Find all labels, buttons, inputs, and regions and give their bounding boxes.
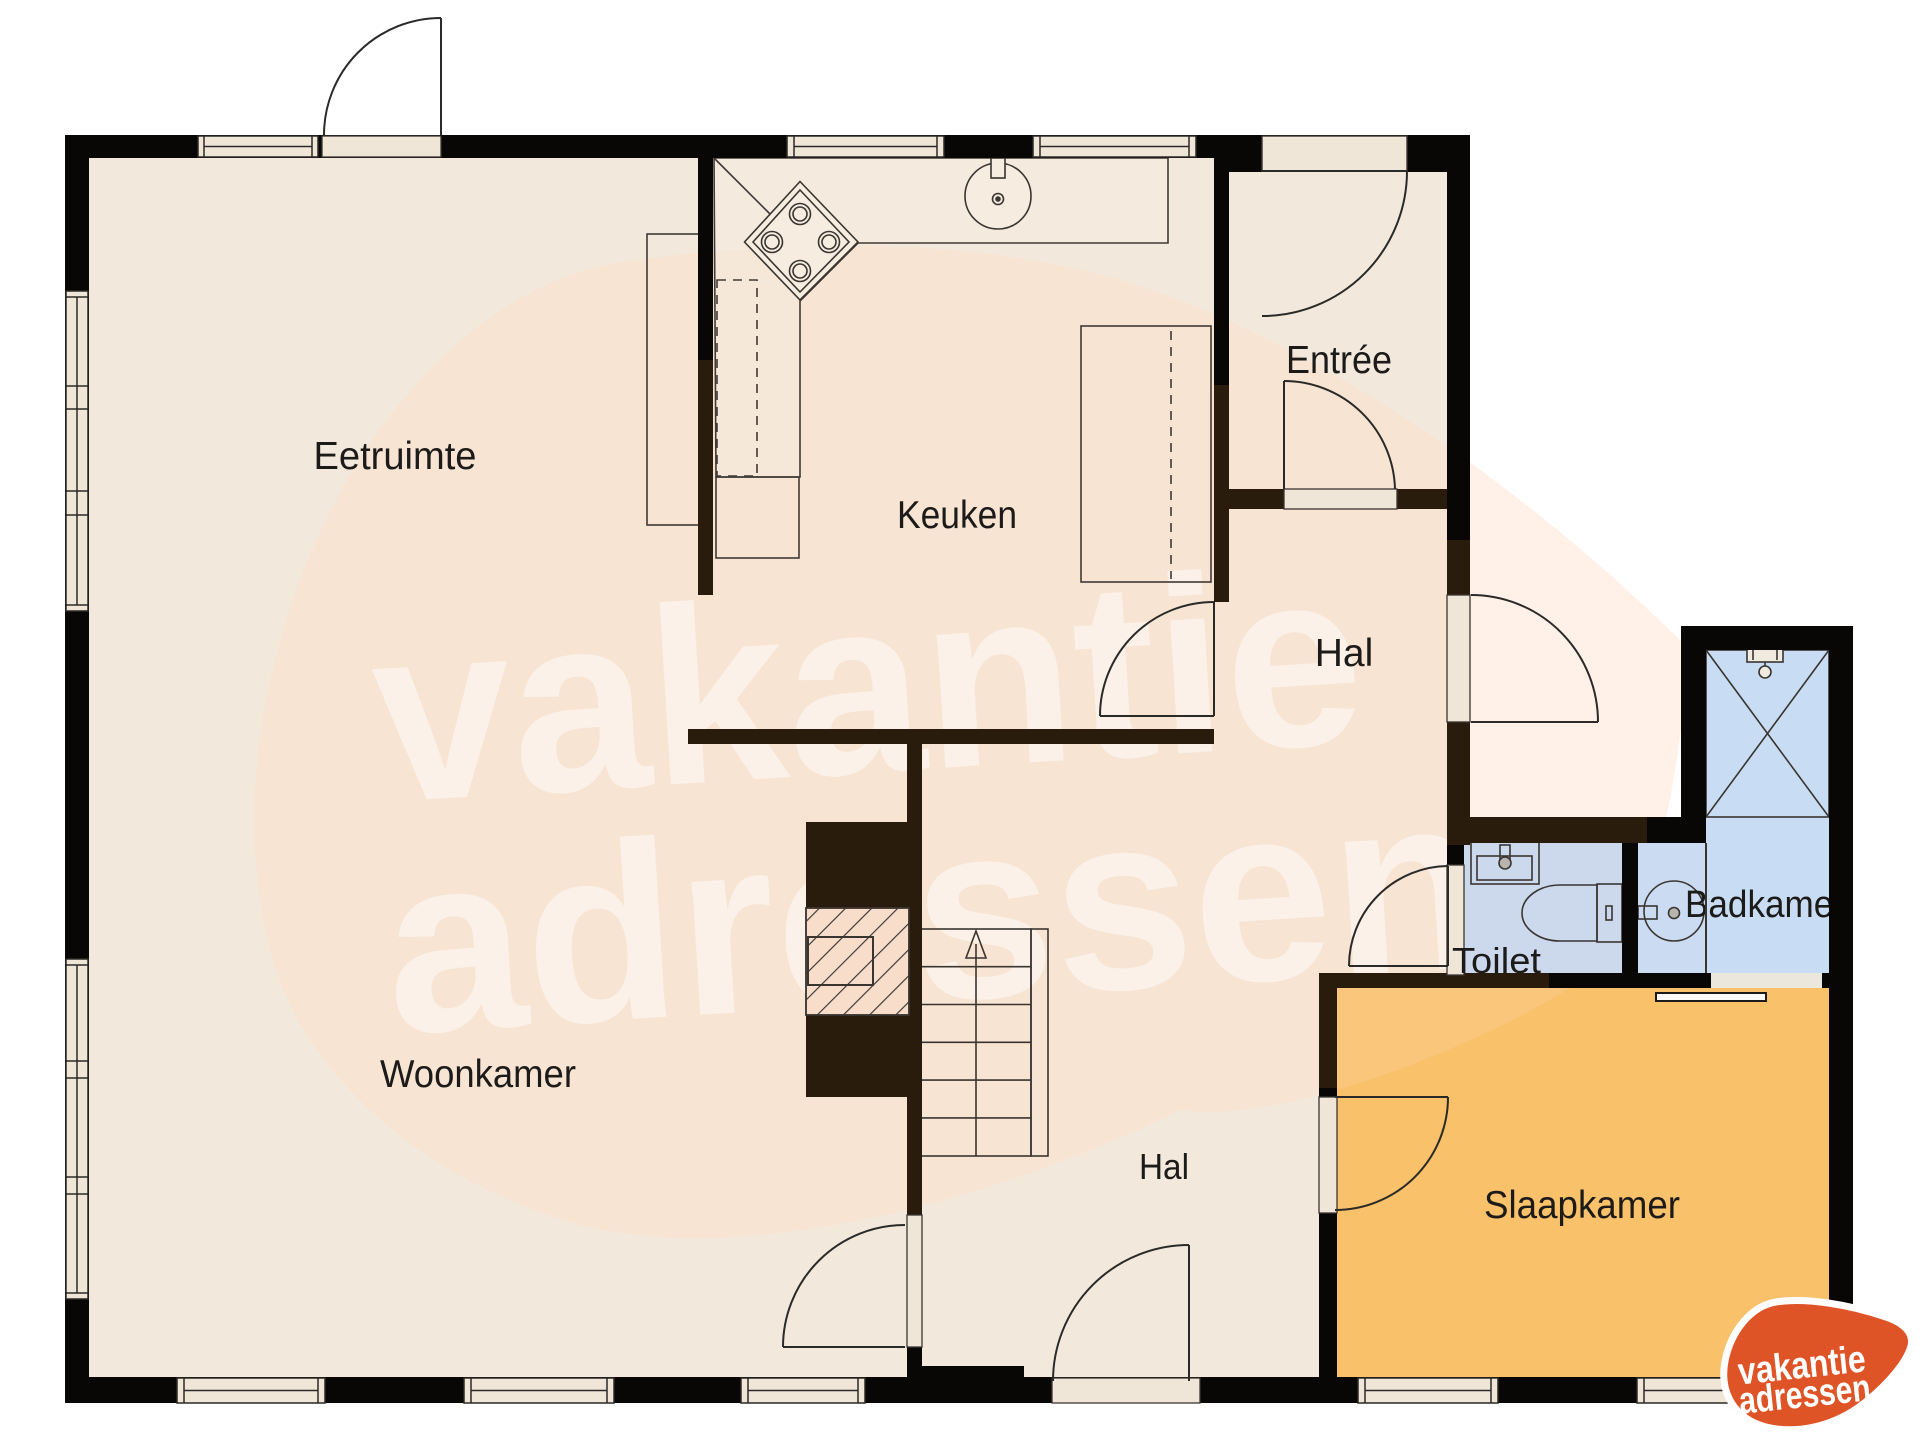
svg-text:Keuken: Keuken [897,494,1017,537]
svg-text:Toilet: Toilet [1452,940,1541,981]
svg-text:Slaapkamer: Slaapkamer [1484,1184,1680,1227]
svg-text:Woonkamer: Woonkamer [380,1053,576,1096]
svg-text:Badkamer: Badkamer [1685,884,1845,926]
svg-text:Hal: Hal [1315,632,1374,675]
svg-text:Eetruimte: Eetruimte [314,435,477,478]
svg-text:Hal: Hal [1139,1146,1189,1187]
svg-text:Entrée: Entrée [1286,339,1392,382]
